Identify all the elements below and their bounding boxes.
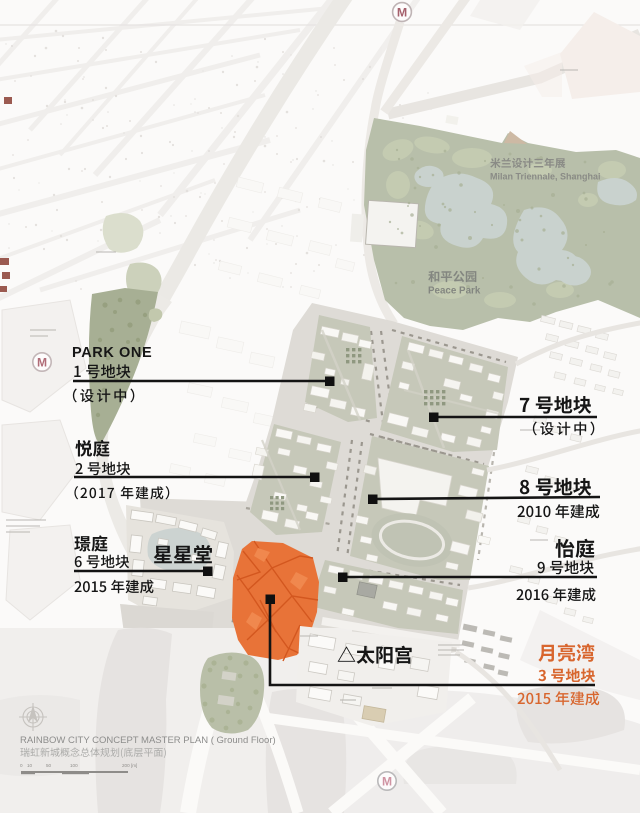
svg-text:PARK ONE: PARK ONE bbox=[72, 345, 152, 361]
svg-text:M: M bbox=[382, 774, 392, 788]
svg-text:0: 0 bbox=[20, 763, 23, 768]
svg-text:Peace Park: Peace Park bbox=[428, 286, 481, 297]
svg-text:M: M bbox=[397, 5, 407, 19]
svg-text:M: M bbox=[37, 355, 47, 369]
svg-text:100: 100 bbox=[70, 763, 78, 768]
svg-text:RAINBOW CITY CONCEPT MASTER PL: RAINBOW CITY CONCEPT MASTER PLAN ( Groun… bbox=[20, 735, 276, 746]
svg-text:10: 10 bbox=[27, 763, 33, 768]
svg-text:200 [m]: 200 [m] bbox=[122, 763, 137, 768]
svg-text:50: 50 bbox=[46, 763, 52, 768]
svg-text:Milan Triennale, Shanghai: Milan Triennale, Shanghai bbox=[490, 172, 601, 182]
